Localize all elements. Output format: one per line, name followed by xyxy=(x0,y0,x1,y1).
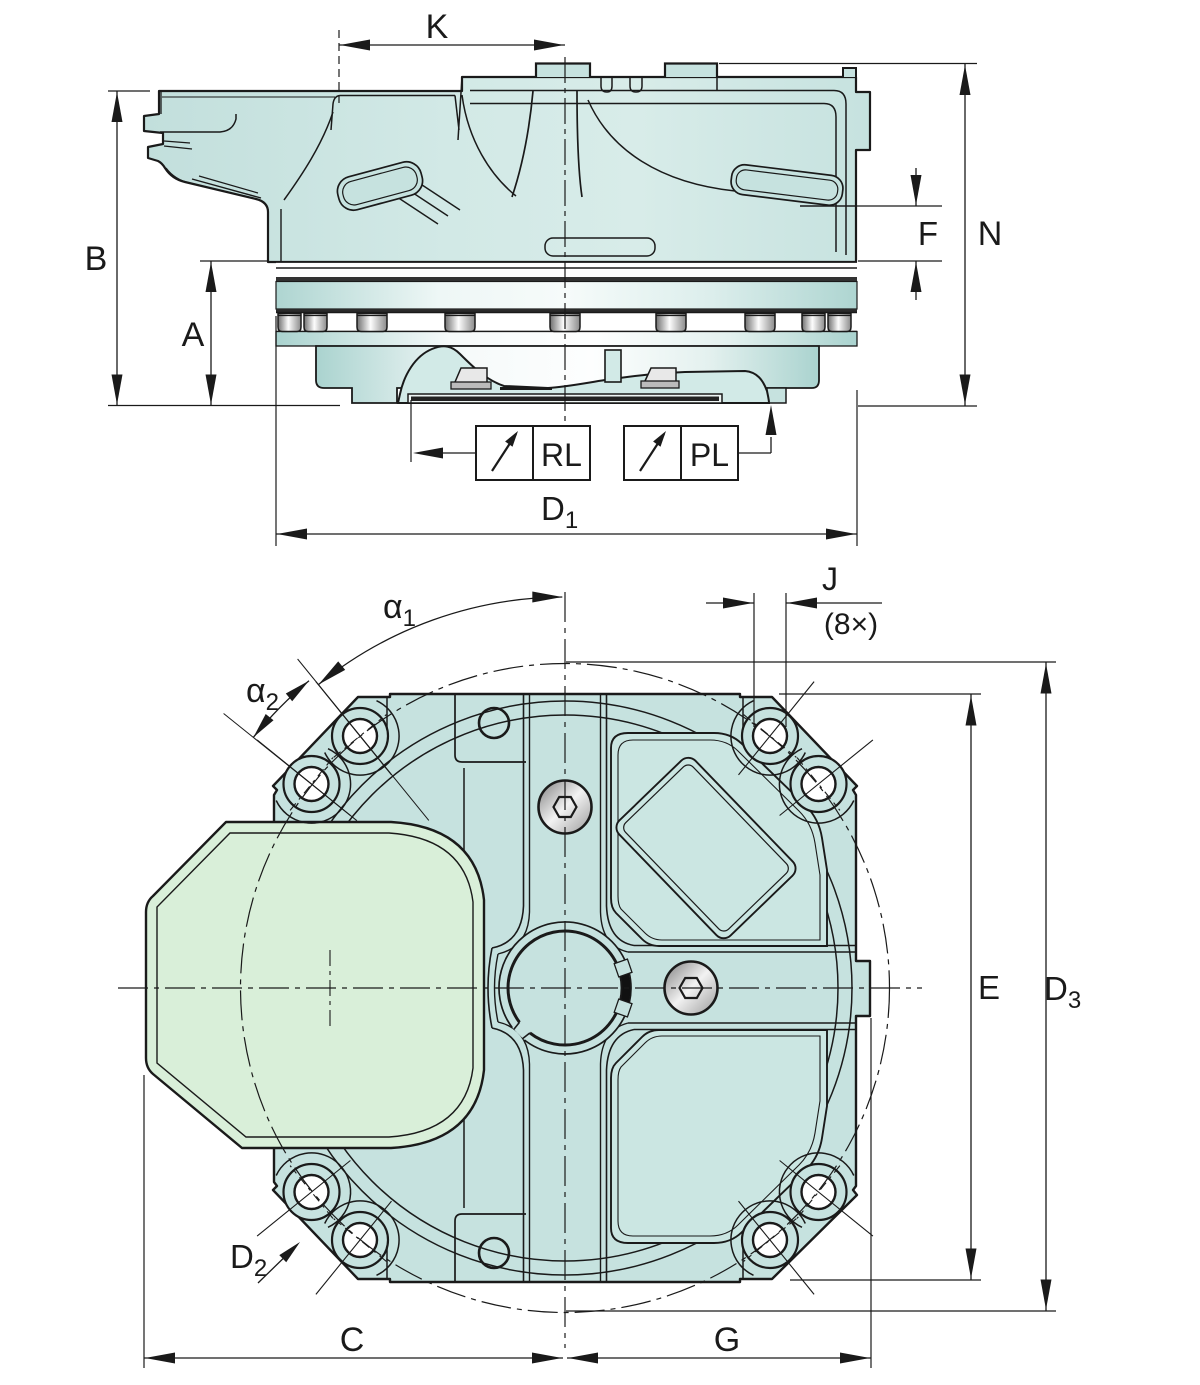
svg-text:B: B xyxy=(85,240,108,278)
svg-text:RL: RL xyxy=(541,437,582,473)
svg-text:(8×): (8×) xyxy=(824,608,878,641)
svg-text:E: E xyxy=(978,969,1000,1006)
svg-text:PL: PL xyxy=(690,437,729,473)
svg-text:N: N xyxy=(978,215,1003,253)
svg-text:C: C xyxy=(340,1321,365,1359)
svg-text:G: G xyxy=(714,1321,740,1359)
svg-text:F: F xyxy=(918,215,938,252)
svg-text:A: A xyxy=(182,316,205,354)
svg-text:K: K xyxy=(426,8,449,46)
svg-text:J: J xyxy=(822,561,838,597)
